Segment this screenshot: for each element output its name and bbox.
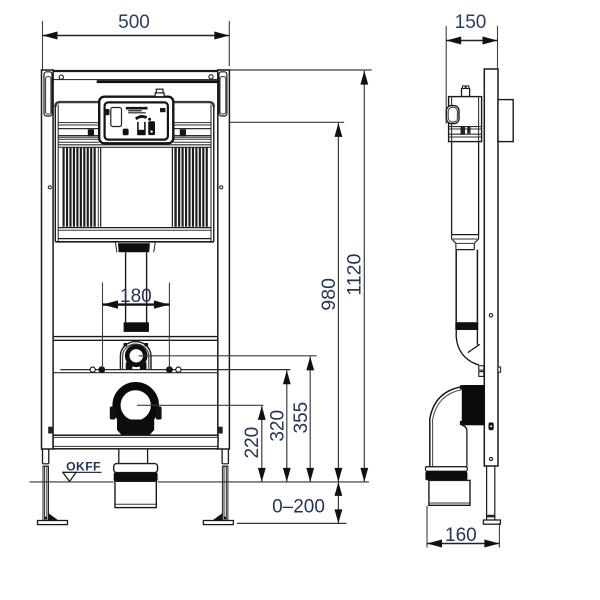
svg-text:150: 150 [455, 12, 487, 33]
svg-text:500: 500 [118, 12, 150, 33]
svg-text:0–200: 0–200 [272, 497, 325, 518]
svg-text:980: 980 [318, 278, 340, 311]
svg-text:1120: 1120 [343, 253, 365, 295]
svg-text:220: 220 [242, 427, 263, 459]
svg-text:320: 320 [267, 410, 288, 442]
svg-text:355: 355 [291, 402, 312, 434]
svg-text:OKFF: OKFF [66, 460, 101, 474]
svg-text:160: 160 [445, 525, 477, 546]
svg-text:180: 180 [120, 286, 152, 307]
